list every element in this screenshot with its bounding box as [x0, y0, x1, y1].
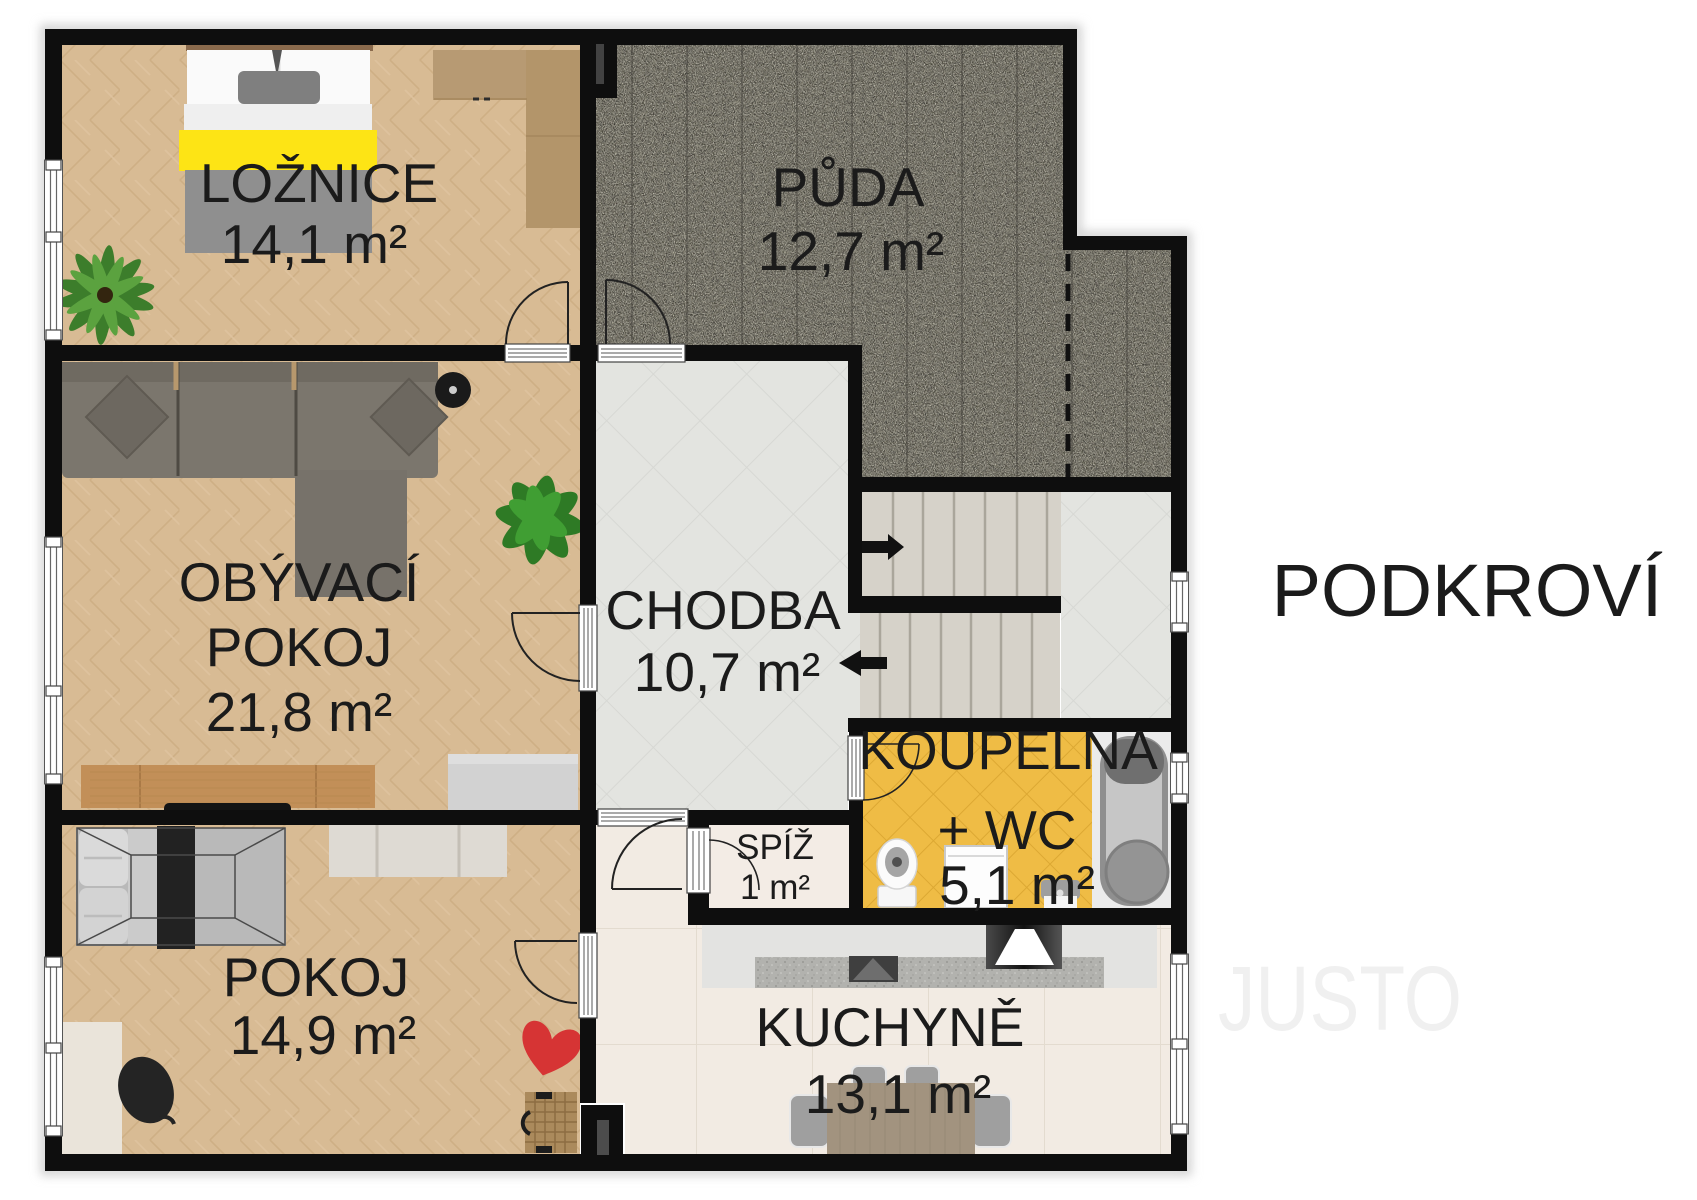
svg-text:14,9 m²: 14,9 m²: [230, 1004, 416, 1066]
svg-text:SPÍŽ: SPÍŽ: [736, 828, 814, 867]
svg-text:PODKROVÍ: PODKROVÍ: [1272, 549, 1663, 632]
svg-text:PŮDA: PŮDA: [772, 155, 925, 218]
svg-text:POKOJ: POKOJ: [206, 616, 392, 678]
svg-text:JUSTO: JUSTO: [1218, 948, 1462, 1050]
svg-text:+ WC: + WC: [937, 799, 1076, 861]
svg-text:14,1 m²: 14,1 m²: [221, 213, 407, 275]
svg-text:OBÝVACÍ: OBÝVACÍ: [179, 551, 420, 613]
svg-text:12,7 m²: 12,7 m²: [758, 220, 944, 282]
svg-text:CHODBA: CHODBA: [605, 579, 841, 641]
svg-text:13,1 m²: 13,1 m²: [805, 1063, 991, 1125]
svg-text:1 m²: 1 m²: [740, 868, 810, 907]
svg-text:POKOJ: POKOJ: [223, 946, 409, 1008]
svg-text:10,7 m²: 10,7 m²: [634, 641, 820, 703]
svg-text:KOUPELNA: KOUPELNA: [858, 719, 1158, 781]
svg-text:5,1 m²: 5,1 m²: [939, 854, 1095, 916]
svg-text:21,8 m²: 21,8 m²: [206, 681, 392, 743]
svg-text:KUCHYNĚ: KUCHYNĚ: [756, 996, 1025, 1058]
svg-text:LOŽNICE: LOŽNICE: [200, 152, 438, 214]
